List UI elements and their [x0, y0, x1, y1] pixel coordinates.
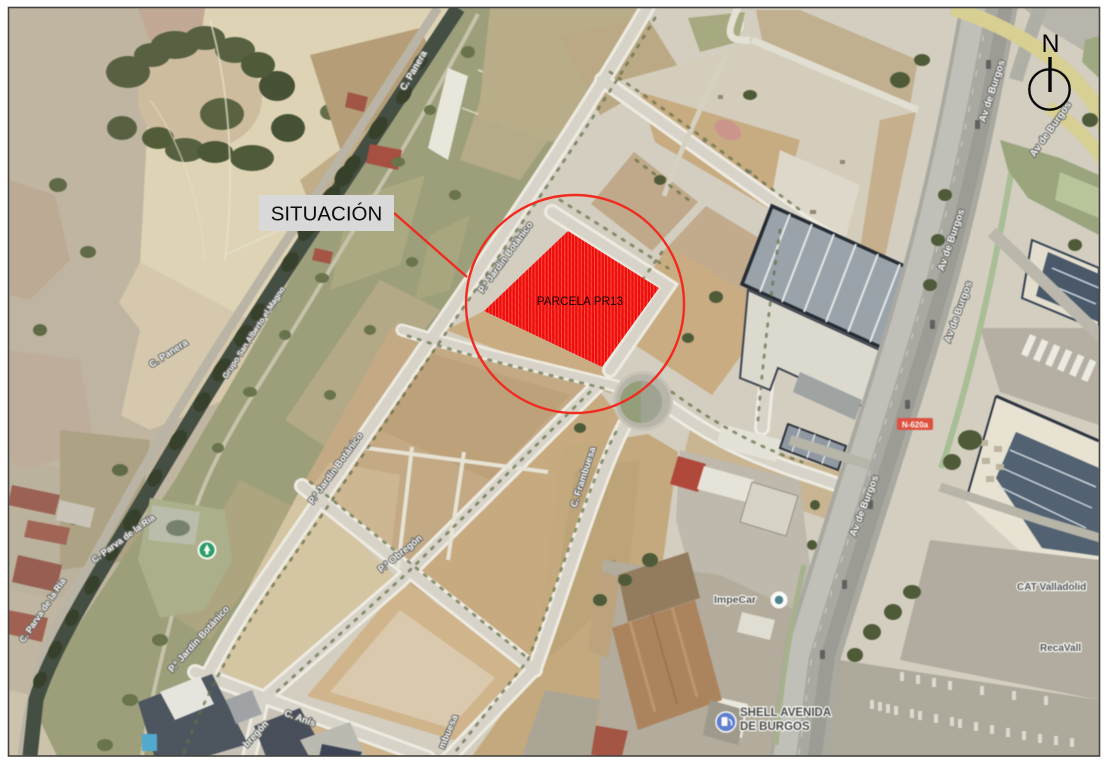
svg-text:N: N	[1041, 30, 1059, 58]
svg-text:SITUACIÓN: SITUACIÓN	[271, 203, 383, 226]
svg-text:PARCELA PR13: PARCELA PR13	[537, 296, 624, 308]
